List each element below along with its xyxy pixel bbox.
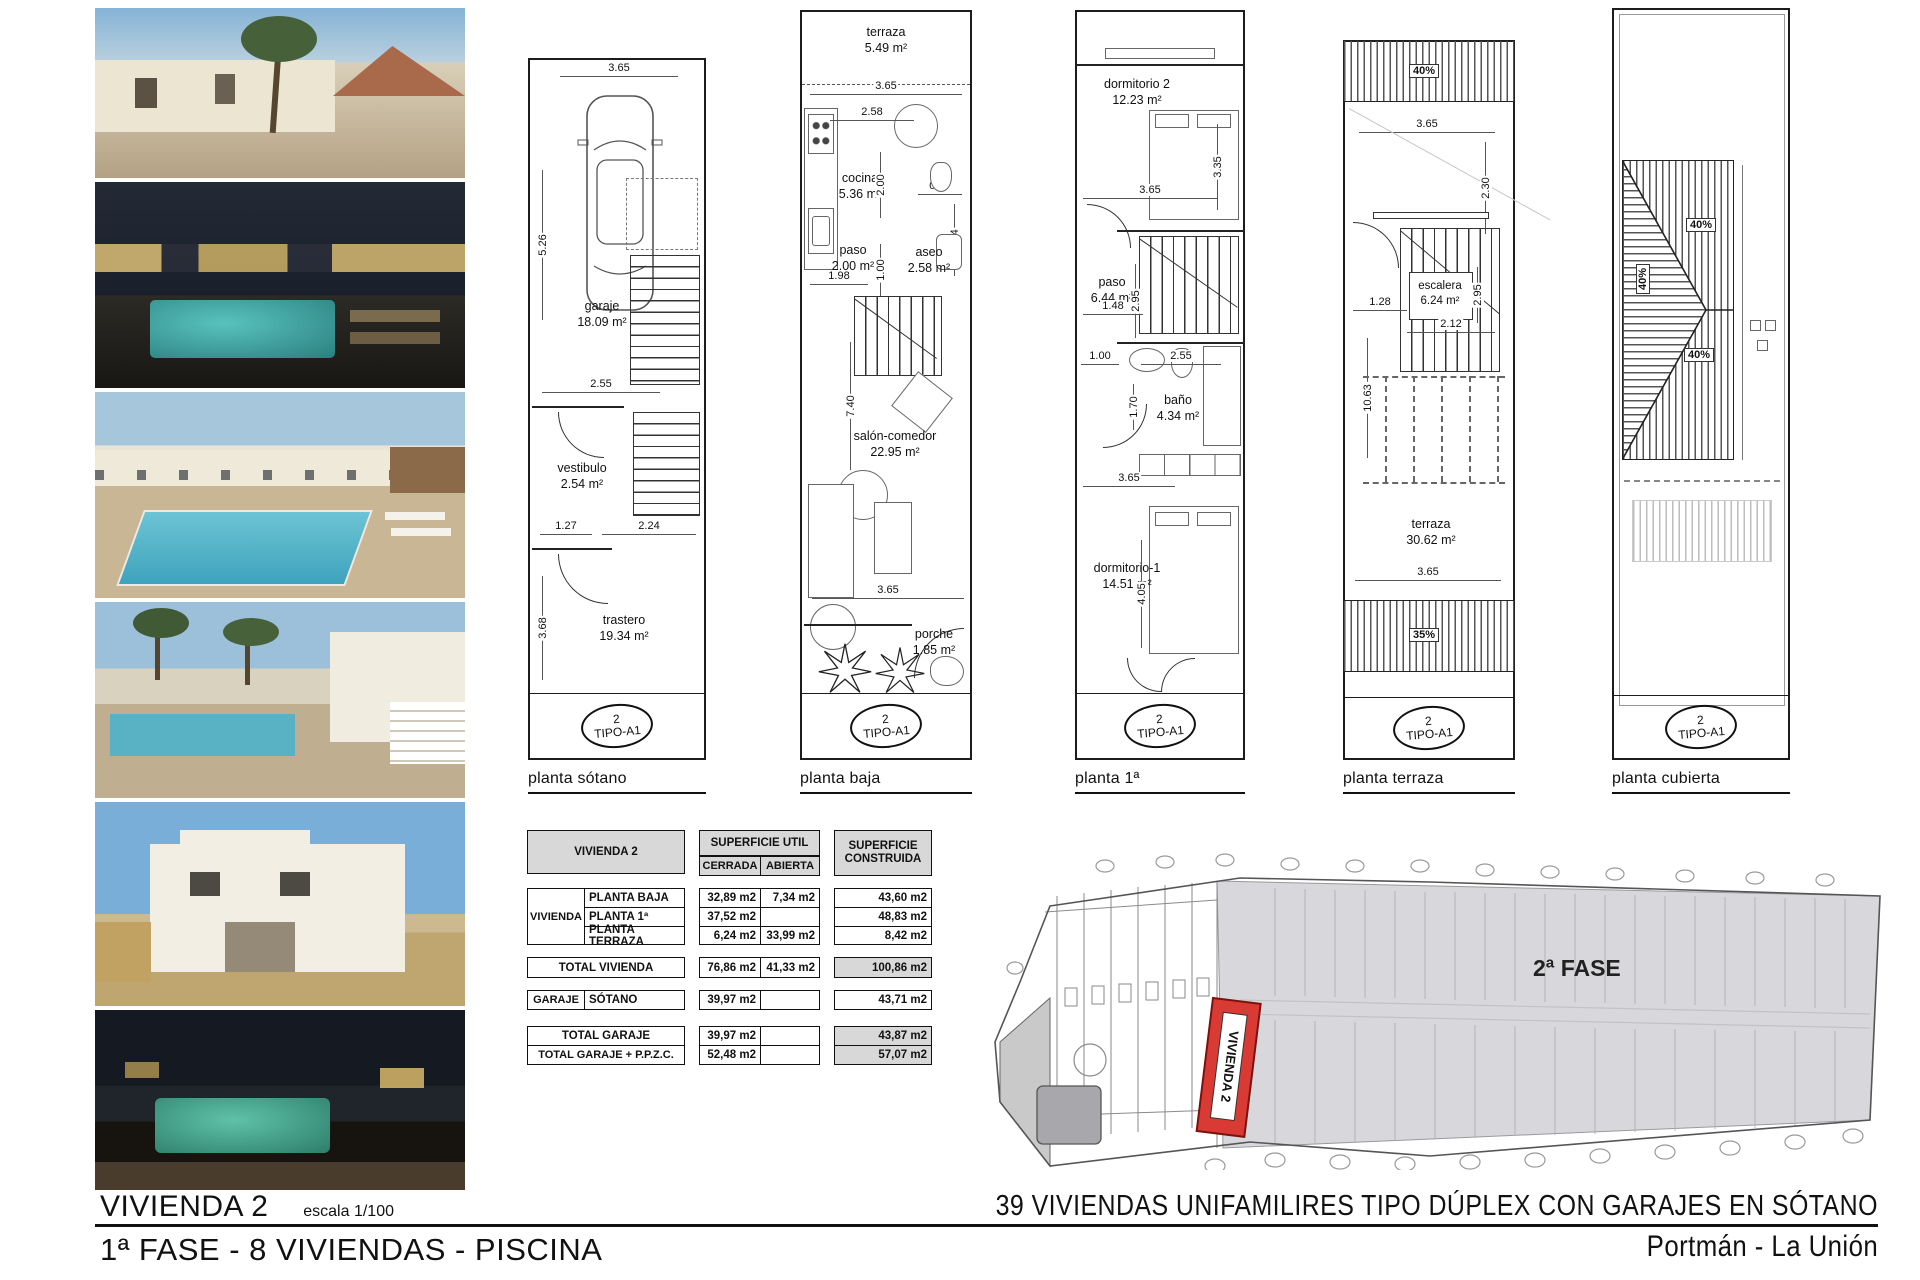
stamp-zone: 2 TIPO-A1 bbox=[1345, 697, 1513, 758]
lintel bbox=[1373, 212, 1489, 219]
dimension: 3.65 bbox=[1359, 132, 1495, 133]
table-group-vivienda: VIVIENDA bbox=[527, 888, 585, 945]
window-shape bbox=[190, 872, 220, 896]
room-area: 18.09 m² bbox=[550, 314, 654, 330]
dim-label: 2.55 bbox=[588, 378, 613, 390]
window-shape bbox=[125, 1062, 159, 1078]
room-label-aseo: aseo 2.58 m² bbox=[894, 244, 964, 277]
table-row-label: PLANTA TERRAZA bbox=[584, 926, 685, 945]
stamp-zone: 2 TIPO-A1 bbox=[1077, 693, 1243, 758]
table-total-vivienda-label: TOTAL VIVIENDA bbox=[527, 957, 685, 978]
table-total-garaje-label: TOTAL GARAJE bbox=[527, 1026, 685, 1046]
dimension: 3.65 bbox=[1083, 486, 1175, 487]
room-label-vestibulo: vestibulo 2.54 m² bbox=[536, 460, 628, 493]
table-cell: 76,86 m2 bbox=[699, 957, 761, 978]
roof-slope-label: 40% bbox=[1684, 348, 1714, 362]
render-photo-pool-night bbox=[95, 182, 465, 388]
stamp-zone: 2 TIPO-A1 bbox=[530, 693, 704, 758]
photo-shape bbox=[333, 46, 465, 96]
table-cell: 39,97 m2 bbox=[699, 990, 761, 1010]
washbasin-icon bbox=[1129, 348, 1165, 372]
table-sub-abierta: ABIERTA bbox=[760, 856, 820, 876]
room-area: 6.24 m² bbox=[1412, 294, 1468, 309]
dim-label: 2.00 bbox=[875, 172, 887, 197]
dimension: 4.05 bbox=[1141, 540, 1142, 648]
table-total-ppzc-label: TOTAL GARAJE + P.P.Z.C. bbox=[527, 1045, 685, 1065]
table-cell-total: 43,87 m2 bbox=[834, 1026, 932, 1046]
plant-icon bbox=[816, 640, 874, 696]
stamp-type: TIPO-A1 bbox=[1678, 725, 1726, 742]
table-cell bbox=[760, 990, 820, 1010]
pillow-icon bbox=[1155, 114, 1189, 128]
photo-shape bbox=[350, 332, 440, 344]
dimension: 1.48 bbox=[1083, 314, 1143, 315]
table-cell-total: 57,07 m2 bbox=[834, 1045, 932, 1065]
plan-caption-baja: planta baja bbox=[800, 770, 972, 794]
pool-shape bbox=[155, 1098, 330, 1153]
armchair-icon bbox=[891, 371, 953, 433]
plan-caption-sotano: planta sótano bbox=[528, 770, 706, 794]
table-cell: 41,33 m2 bbox=[760, 957, 820, 978]
room-name: aseo bbox=[894, 244, 964, 260]
pillow-icon bbox=[1155, 512, 1189, 526]
type-stamp: 2 TIPO-A1 bbox=[1391, 703, 1467, 753]
dim-label: 1.28 bbox=[1367, 296, 1392, 308]
pillow-icon bbox=[1197, 114, 1231, 128]
table-cell: 39,97 m2 bbox=[699, 1026, 761, 1046]
floorplan-sotano: 3.65 5.26 garaje 18.09 m² 2.55 vestibulo… bbox=[528, 58, 706, 760]
stamp-zone: 2 TIPO-A1 bbox=[802, 693, 970, 758]
table-cell: 7,34 m2 bbox=[760, 888, 820, 908]
table-cell: 37,52 m2 bbox=[699, 907, 761, 927]
site-plan: VIVIENDA 2 2ª FASE bbox=[985, 848, 1885, 1170]
table-cell: 43,71 m2 bbox=[834, 990, 932, 1010]
stair-dashed-outline bbox=[626, 178, 698, 250]
roof-slope-label: 35% bbox=[1409, 628, 1439, 642]
room-name: terraza bbox=[836, 24, 936, 40]
dim-label: 10.63 bbox=[1362, 382, 1374, 414]
pergola-beam bbox=[1413, 376, 1415, 482]
plan-caption-primera: planta 1ª bbox=[1075, 770, 1245, 794]
pergola-beam bbox=[1363, 482, 1505, 484]
sheet-title-text: VIVIENDA 2 bbox=[100, 1190, 268, 1223]
table-col-util: SUPERFICIE UTIL bbox=[699, 830, 820, 856]
roof-ridge-lines bbox=[1622, 160, 1734, 460]
washer-icon bbox=[894, 104, 938, 148]
dimension: 3.65 bbox=[812, 598, 964, 599]
title-rule bbox=[95, 1224, 1878, 1227]
dim-label: 3.68 bbox=[537, 615, 549, 640]
dim-label: 1.00 bbox=[875, 257, 887, 282]
room-area: 4.34 m² bbox=[1143, 408, 1213, 424]
sheet-scale: escala 1/100 bbox=[303, 1203, 394, 1220]
room-label-escalera-box: escalera 6.24 m² bbox=[1409, 272, 1473, 320]
pergola-beam bbox=[1441, 376, 1443, 482]
dim-label: 3.65 bbox=[1415, 566, 1440, 578]
dim-label: 3.65 bbox=[1137, 184, 1162, 196]
table-col-construida: SUPERFICIE CONSTRUIDA bbox=[834, 830, 932, 876]
dimension: 2.55 bbox=[1141, 364, 1221, 365]
roof-slope-label: 40% bbox=[1409, 64, 1439, 78]
room-label-cocina: cocina 5.36 m² bbox=[820, 170, 900, 203]
room-area: 2.58 m² bbox=[894, 260, 964, 276]
sofa-icon bbox=[808, 484, 854, 598]
lounger-shape bbox=[385, 512, 445, 520]
table-sub-cerrada: CERRADA bbox=[699, 856, 761, 876]
pergola-beam bbox=[1385, 376, 1387, 482]
project-location: Portmán - La Unión bbox=[1647, 1230, 1878, 1264]
room-label-dormitorio2: dormitorio 2 12.23 m² bbox=[1087, 76, 1187, 109]
stamp-type: TIPO-A1 bbox=[863, 724, 911, 741]
dimension: 3.65 bbox=[810, 94, 962, 95]
table-cell: 33,99 m2 bbox=[760, 926, 820, 945]
type-stamp: 2 TIPO-A1 bbox=[848, 701, 924, 751]
room-name: vestibulo bbox=[536, 460, 628, 476]
door-arc bbox=[1161, 658, 1195, 692]
dim-label: 2.95 bbox=[1130, 288, 1142, 313]
dim-label: 7.40 bbox=[845, 393, 857, 418]
room-area: 22.95 m² bbox=[840, 444, 950, 460]
dim-label: 2.55 bbox=[1168, 350, 1193, 362]
lounger-shape bbox=[391, 528, 451, 536]
table-cell: 43,60 m2 bbox=[834, 888, 932, 908]
dim-label: 1.98 bbox=[826, 270, 851, 282]
room-label-salon: salón-comedor 22.95 m² bbox=[840, 428, 950, 461]
room-name: dormitorio 2 bbox=[1087, 76, 1187, 92]
table-cell: 48,83 m2 bbox=[834, 907, 932, 927]
dimension: 2.95 bbox=[1477, 267, 1478, 323]
room-name: escalera bbox=[1412, 279, 1468, 294]
balcony bbox=[1077, 12, 1243, 66]
room-area: 2.54 m² bbox=[536, 476, 628, 492]
door-arc bbox=[1127, 658, 1161, 692]
table-group-garaje: GARAJE bbox=[527, 990, 585, 1010]
plan-caption-terraza: planta terraza bbox=[1343, 770, 1515, 794]
dimension: 2.12 bbox=[1407, 332, 1495, 333]
room-name: terraza bbox=[1379, 516, 1483, 532]
table-title: VIVIENDA 2 bbox=[527, 830, 685, 874]
pool-shape bbox=[150, 300, 335, 358]
toilet-icon bbox=[930, 162, 952, 192]
dimension: 3.65 bbox=[1083, 198, 1217, 199]
dim-label: 3.65 bbox=[873, 80, 898, 92]
photo-shape bbox=[215, 74, 235, 104]
table-cell bbox=[760, 907, 820, 927]
photo-shape bbox=[350, 310, 440, 322]
room-area: 5.49 m² bbox=[836, 40, 936, 56]
room-name: cocina bbox=[820, 170, 900, 186]
stamp-zone: 2 TIPO-A1 bbox=[1614, 695, 1788, 758]
door-arc bbox=[1103, 404, 1147, 448]
floorplan-primera: dormitorio 2 12.23 m² 3.35 3.65 paso 6.4… bbox=[1075, 10, 1245, 760]
room-area: 14.51 m² bbox=[1079, 576, 1175, 592]
dim-label: 1.27 bbox=[553, 520, 578, 532]
terrace-zone: terraza 5.49 m² bbox=[802, 12, 970, 85]
wall bbox=[1117, 230, 1245, 232]
table-cell bbox=[760, 1026, 820, 1046]
type-stamp: 2 TIPO-A1 bbox=[1663, 702, 1739, 752]
dimension: 3.35 bbox=[1217, 124, 1218, 210]
photo-shape bbox=[95, 1162, 465, 1190]
wardrobe-icon bbox=[1139, 454, 1241, 476]
photo-shape bbox=[180, 830, 310, 846]
dim-label: 1.00 bbox=[1087, 350, 1112, 362]
photo-shape bbox=[95, 244, 465, 272]
siteplan-phase2-region bbox=[1217, 881, 1880, 1148]
wall bbox=[532, 548, 612, 550]
dimension: 2.30 bbox=[1485, 142, 1486, 234]
dimension: 5.26 bbox=[542, 170, 543, 320]
dim-label: 1.48 bbox=[1100, 300, 1125, 312]
project-title: 39 VIVIENDAS UNIFAMILIRES TIPO DÚPLEX CO… bbox=[996, 1190, 1878, 1223]
table-cell-total: 100,86 m2 bbox=[834, 957, 932, 978]
render-photo-pool-day bbox=[95, 392, 465, 598]
room-name: paso bbox=[818, 242, 888, 258]
room-label-trastero: trastero 19.34 m² bbox=[572, 612, 676, 645]
dim-label: 2.12 bbox=[1438, 318, 1463, 330]
room-label-dormitorio1: dormitorio-1 14.51 m² bbox=[1079, 560, 1175, 593]
door-arc bbox=[1353, 222, 1399, 268]
window-shape bbox=[380, 1068, 424, 1088]
floorplan-baja: terraza 5.49 m² 3.65 2.58 cocina 5.36 m²… bbox=[800, 10, 972, 760]
surface-table: VIVIENDA 2 SUPERFICIE UTIL CERRADA ABIER… bbox=[527, 830, 939, 1066]
floorplan-terraza: 40% 3.65 2.30 escalera 6.24 m² 2.95 1.28… bbox=[1343, 40, 1515, 760]
chimney-icon bbox=[1750, 320, 1761, 331]
dimension: 2.00 bbox=[880, 152, 881, 218]
table-cell: 32,89 m2 bbox=[699, 888, 761, 908]
stamp-type: TIPO-A1 bbox=[594, 724, 642, 741]
dim-label: 5.26 bbox=[537, 232, 549, 257]
room-area: 19.34 m² bbox=[572, 628, 676, 644]
community-pool bbox=[1037, 1086, 1101, 1144]
photo-shape bbox=[95, 922, 151, 982]
door-arc bbox=[1087, 204, 1131, 248]
dim-label: 3.65 bbox=[875, 584, 900, 596]
dimension: 1.00 bbox=[1081, 364, 1119, 365]
pillow-icon bbox=[1197, 512, 1231, 526]
room-label-escalera: escalera 6.24 m² bbox=[1412, 279, 1468, 309]
pergola-beam bbox=[1497, 376, 1499, 482]
wall bbox=[532, 406, 624, 408]
dim-label: 2.58 bbox=[859, 106, 884, 118]
table-row-label: SÓTANO bbox=[584, 990, 685, 1010]
render-photo-pool-deck-night bbox=[95, 1010, 465, 1190]
coffee-table-icon bbox=[874, 502, 912, 574]
room-name: dormitorio-1 bbox=[1079, 560, 1175, 576]
dim-label: 4.05 bbox=[1136, 581, 1148, 606]
lower-roof-hatch bbox=[1632, 500, 1772, 562]
roof-slope-label: 40% bbox=[1636, 264, 1650, 294]
garage-door-shape bbox=[225, 922, 295, 972]
table-cell: 52,48 m2 bbox=[699, 1045, 761, 1065]
dimension: 1.98 bbox=[810, 284, 868, 285]
table-row-label: PLANTA BAJA bbox=[584, 888, 685, 908]
wall bbox=[1742, 165, 1743, 460]
room-name: garaje bbox=[550, 298, 654, 314]
stamp-type: TIPO-A1 bbox=[1406, 726, 1454, 743]
photo-shape bbox=[135, 78, 157, 108]
dimension: 2.55 bbox=[542, 392, 660, 393]
room-label-terraza: terraza 30.62 m² bbox=[1379, 516, 1483, 549]
dimension: 1.27 bbox=[540, 534, 592, 535]
room-area: 30.62 m² bbox=[1379, 532, 1483, 548]
dim-label: 3.65 bbox=[1116, 472, 1141, 484]
wall bbox=[1117, 342, 1245, 344]
dim-label: 2.30 bbox=[1480, 175, 1492, 200]
window-shape bbox=[280, 872, 310, 896]
shrub-icon bbox=[930, 656, 964, 686]
dim-label: 3.65 bbox=[1414, 118, 1439, 130]
floorplan-cubierta: 40% 40% 40% 2 TIPO-A1 bbox=[1612, 8, 1790, 760]
dimension: 3.65 bbox=[1355, 580, 1501, 581]
type-stamp: 2 TIPO-A1 bbox=[579, 701, 655, 751]
sightline bbox=[1349, 108, 1551, 221]
table-cell bbox=[760, 1045, 820, 1065]
room-label-bano: baño 4.34 m² bbox=[1143, 392, 1213, 425]
plant-icon bbox=[874, 644, 926, 696]
plan-caption-cubierta: planta cubierta bbox=[1612, 770, 1790, 794]
stairs bbox=[633, 412, 700, 516]
room-area: 12.23 m² bbox=[1087, 92, 1187, 108]
dimension: 1.00 bbox=[880, 244, 881, 296]
dim-label: 2.95 bbox=[1472, 282, 1484, 307]
chimney-icon bbox=[1757, 340, 1768, 351]
dimension: 10.63 bbox=[1367, 338, 1368, 458]
phase-line: 1ª FASE - 8 VIVIENDAS - PISCINA bbox=[100, 1232, 602, 1268]
render-photo-facade-day bbox=[95, 802, 465, 1006]
stairs-shape bbox=[390, 702, 465, 764]
pool-shape bbox=[110, 714, 295, 756]
type-stamp: 2 TIPO-A1 bbox=[1122, 701, 1198, 751]
dimension: 3.65 bbox=[560, 76, 678, 77]
dimension: 0.97 bbox=[918, 194, 962, 195]
dimension: 2.95 bbox=[1135, 264, 1136, 338]
room-label-garaje: garaje 18.09 m² bbox=[550, 298, 654, 331]
render-photo-street-day bbox=[95, 8, 465, 178]
stamp-type: TIPO-A1 bbox=[1137, 724, 1185, 741]
door-arc bbox=[558, 554, 608, 604]
dim-label: 3.65 bbox=[606, 62, 631, 74]
pergola-shape bbox=[390, 447, 465, 493]
chimney-icon bbox=[1765, 320, 1776, 331]
table-cell: 6,24 m2 bbox=[699, 926, 761, 945]
dim-label: 3.35 bbox=[1212, 154, 1224, 179]
table-cell: 8,42 m2 bbox=[834, 926, 932, 945]
dimension: 1.28 bbox=[1353, 310, 1407, 311]
wall bbox=[804, 624, 912, 626]
palm-tree-shape bbox=[241, 16, 317, 62]
sheet-title: VIVIENDA 2 escala 1/100 bbox=[100, 1190, 394, 1224]
roof-slope-label: 40% bbox=[1686, 218, 1716, 232]
dimension: 2.58 bbox=[830, 120, 914, 121]
palm-tree-shape bbox=[223, 618, 279, 646]
pool-shape bbox=[116, 510, 373, 586]
phase2-label: 2ª FASE bbox=[1533, 955, 1621, 981]
rail-line bbox=[1624, 480, 1780, 482]
room-name: salón-comedor bbox=[840, 428, 950, 444]
palm-tree-shape bbox=[133, 608, 189, 638]
dimension: 2.24 bbox=[602, 534, 696, 535]
room-name: trastero bbox=[572, 612, 676, 628]
room-name: baño bbox=[1143, 392, 1213, 408]
room-area: 5.36 m² bbox=[820, 186, 900, 202]
room-name: porche bbox=[900, 626, 968, 642]
door-arc bbox=[558, 412, 604, 458]
dimension: 3.68 bbox=[542, 576, 543, 680]
room-label-terraza: terraza 5.49 m² bbox=[836, 24, 936, 57]
dim-label: 2.24 bbox=[636, 520, 661, 532]
balcony-rail bbox=[1105, 48, 1215, 59]
pergola-beam bbox=[1469, 376, 1471, 482]
render-photo-palms-day bbox=[95, 602, 465, 798]
